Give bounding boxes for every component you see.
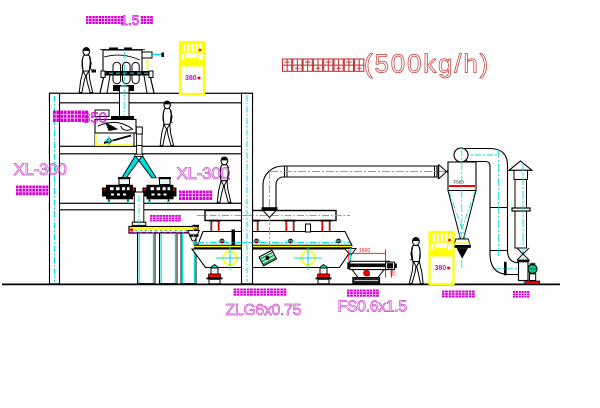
svg-text:1.5: 1.5 bbox=[121, 13, 140, 28]
svg-text:380: 380 bbox=[435, 265, 447, 272]
svg-text:XL-300: XL-300 bbox=[14, 160, 67, 179]
svg-text:FS0.6x1.5: FS0.6x1.5 bbox=[338, 299, 408, 316]
svg-text:350: 350 bbox=[82, 110, 107, 127]
svg-text:ZLG6x0.75: ZLG6x0.75 bbox=[226, 302, 302, 319]
svg-text:1500: 1500 bbox=[359, 248, 370, 254]
svg-text:XL-300: XL-300 bbox=[177, 164, 230, 183]
svg-text:F500: F500 bbox=[454, 180, 465, 185]
svg-text:(500kg/h): (500kg/h) bbox=[364, 49, 490, 79]
svg-text:380: 380 bbox=[185, 75, 197, 82]
